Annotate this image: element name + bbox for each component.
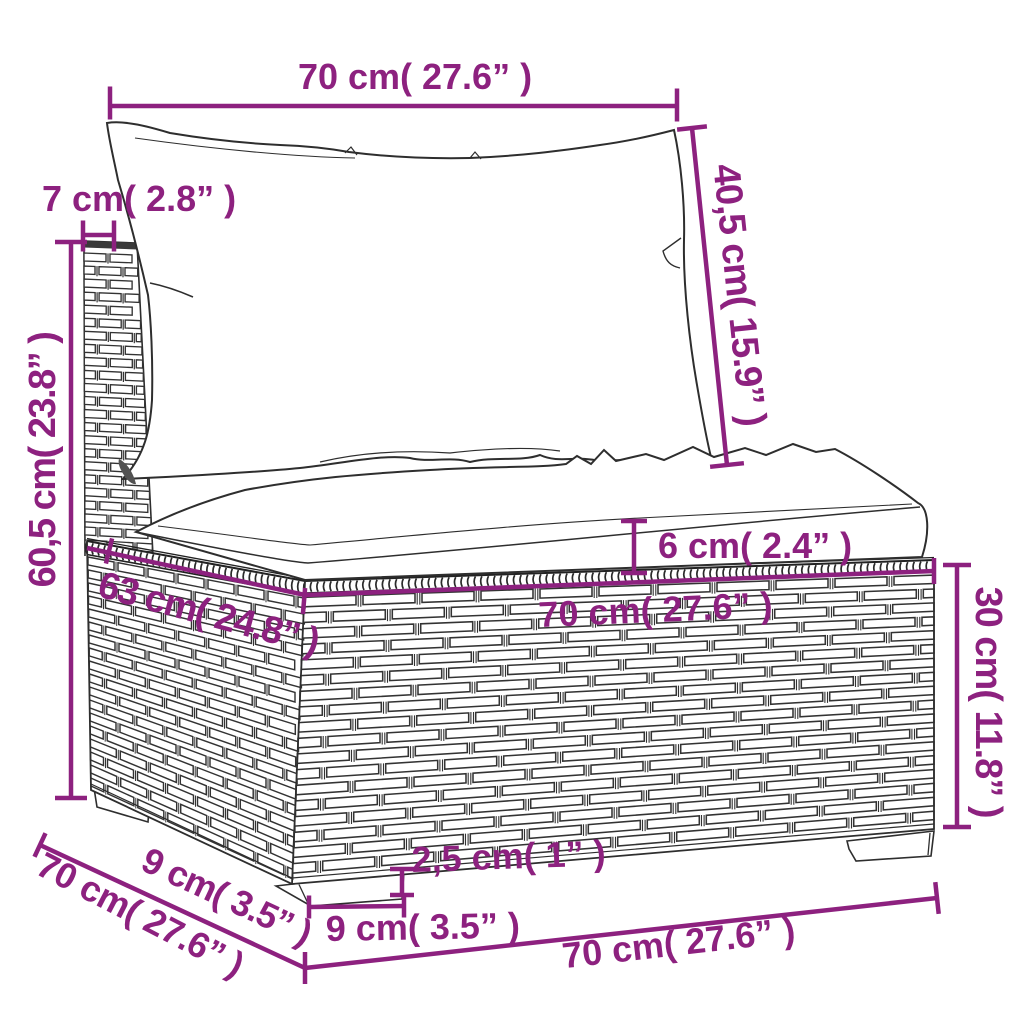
svg-text:60,5 cm( 23.8” ): 60,5 cm( 23.8” ): [22, 333, 64, 588]
svg-text:2,5 cm( 1” ): 2,5 cm( 1” ): [411, 832, 606, 880]
svg-text:30 cm( 11.8” ): 30 cm( 11.8” ): [967, 586, 1009, 817]
svg-text:6 cm( 2.4” ): 6 cm( 2.4” ): [658, 525, 852, 566]
svg-text:9 cm( 3.5” ): 9 cm( 3.5” ): [325, 905, 520, 949]
svg-text:7 cm( 2.8” ): 7 cm( 2.8” ): [42, 178, 236, 219]
svg-text:70 cm( 27.6” ): 70 cm( 27.6” ): [298, 56, 532, 97]
